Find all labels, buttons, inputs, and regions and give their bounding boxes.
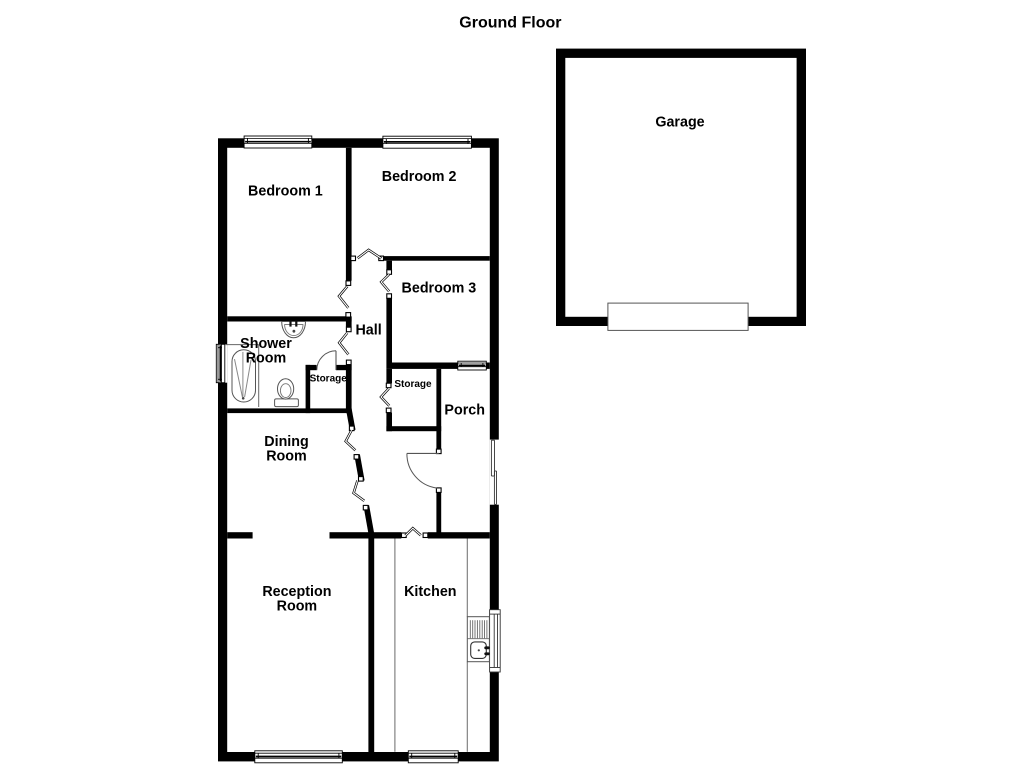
svg-text:Hall: Hall (355, 322, 381, 338)
svg-text:Storage: Storage (310, 374, 348, 385)
svg-text:Kitchen: Kitchen (404, 584, 456, 600)
svg-text:Bedroom 2: Bedroom 2 (382, 169, 457, 185)
svg-text:Storage: Storage (394, 379, 432, 390)
svg-text:Garage: Garage (655, 114, 704, 130)
svg-text:Room: Room (277, 598, 318, 614)
svg-text:Ground Floor: Ground Floor (459, 15, 561, 32)
svg-text:Porch: Porch (444, 402, 485, 418)
svg-text:Room: Room (266, 448, 307, 464)
svg-text:Bedroom 1: Bedroom 1 (248, 183, 323, 199)
svg-text:Room: Room (246, 351, 287, 367)
svg-text:Bedroom 3: Bedroom 3 (402, 280, 477, 296)
svg-text:Reception: Reception (262, 584, 331, 600)
